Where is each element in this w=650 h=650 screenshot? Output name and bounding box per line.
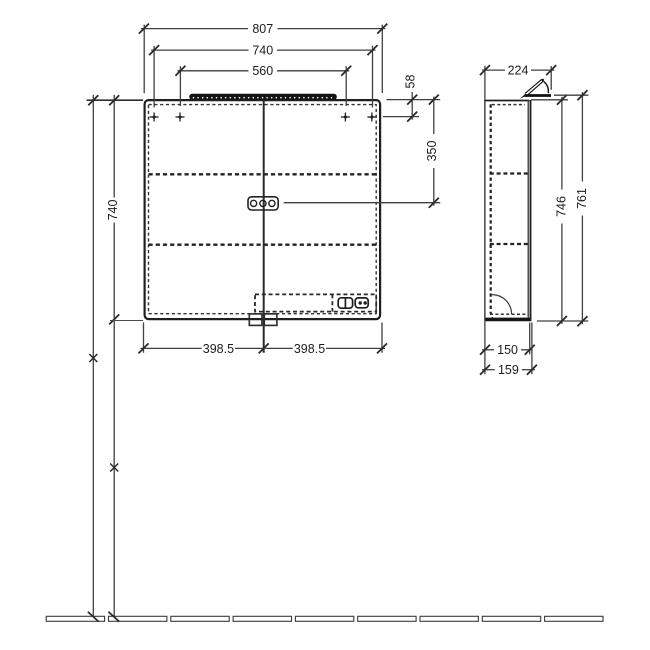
svg-text:150: 150 bbox=[497, 343, 518, 357]
svg-text:159: 159 bbox=[498, 363, 519, 377]
svg-text:350: 350 bbox=[425, 141, 439, 162]
svg-text:58: 58 bbox=[404, 75, 418, 89]
svg-text:746: 746 bbox=[554, 196, 568, 217]
svg-text:761: 761 bbox=[575, 188, 589, 209]
svg-text:224: 224 bbox=[508, 64, 529, 78]
svg-text:398.5: 398.5 bbox=[294, 342, 325, 356]
svg-text:740: 740 bbox=[252, 44, 273, 58]
svg-text:560: 560 bbox=[252, 64, 273, 78]
svg-text:740: 740 bbox=[106, 200, 120, 221]
svg-text:807: 807 bbox=[252, 22, 273, 36]
svg-text:398.5: 398.5 bbox=[203, 342, 234, 356]
